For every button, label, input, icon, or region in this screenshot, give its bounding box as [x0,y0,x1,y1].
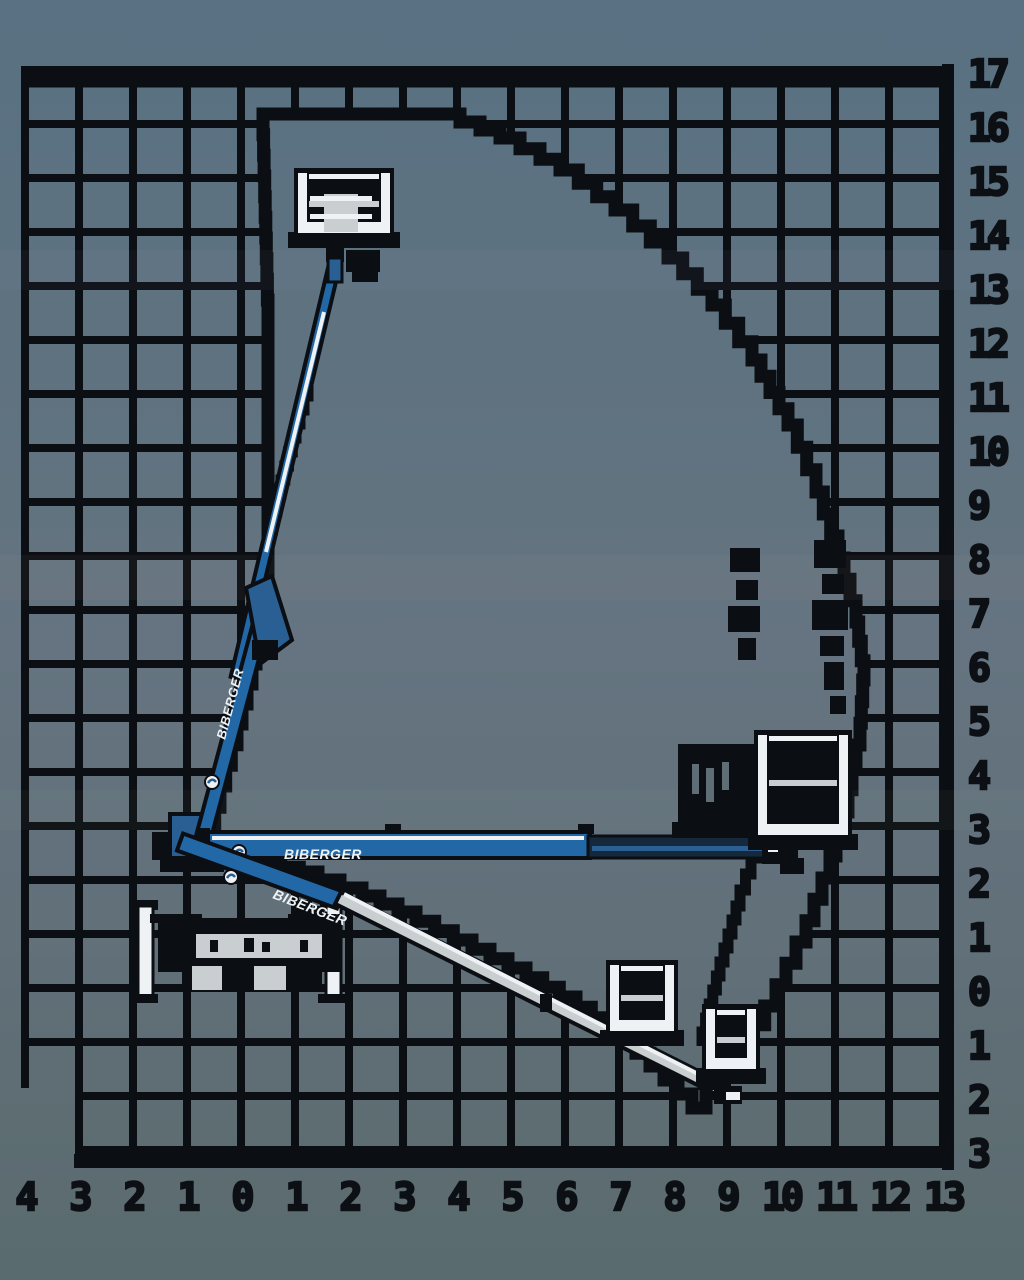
y-axis-label: 2 [968,865,987,903]
y-axis-label: 6 [968,649,987,687]
brand-logo-icon [224,870,238,884]
y-axis-label: 8 [968,541,987,579]
x-axis-label: 0 [232,1178,251,1216]
y-axis-label: 13 [968,271,1006,309]
x-axis-label: 13 [924,1178,962,1216]
x-axis-label: 2 [340,1178,359,1216]
reach-diagram: BIBERGERBIBERGERBIBERGER 432101234567891… [0,0,1024,1280]
basket-outreach-shadow [672,744,760,838]
x-axis-label: 10 [762,1178,800,1216]
x-axis-label: 12 [870,1178,908,1216]
y-axis-label: 3 [968,1135,987,1173]
basket-below-grade-tip [696,1004,766,1084]
y-axis-label: 7 [968,595,987,633]
x-axis-label: 4 [448,1178,467,1216]
y-axis-label: 0 [968,973,987,1011]
y-axis-label: 3 [968,811,987,849]
x-axis-label: 11 [816,1178,854,1216]
x-axis-label: 3 [394,1178,413,1216]
x-axis-label: 2 [124,1178,143,1216]
y-axis-label: 12 [968,325,1006,363]
y-axis-label: 10 [968,433,1006,471]
y-axis-label: 1 [968,919,987,957]
diagram-canvas: BIBERGERBIBERGERBIBERGER [0,0,1024,1280]
y-axis-label: 2 [968,1081,987,1119]
y-axis-label: 1 [968,1027,987,1065]
x-axis-label: 8 [664,1178,683,1216]
brand-logo-icon [205,775,219,789]
y-axis-label: 11 [968,379,1006,417]
x-axis-label: 1 [178,1178,197,1216]
y-axis-label: 4 [968,757,987,795]
y-axis-label: 17 [968,55,1006,93]
x-axis-label: 3 [70,1178,89,1216]
y-axis-label: 16 [968,109,1006,147]
basket-max-height [288,168,400,248]
y-axis-label: 14 [968,217,1006,255]
basket-max-outreach [748,730,858,850]
x-axis-label: 4 [16,1178,35,1216]
x-axis-label: 6 [556,1178,575,1216]
basket-below-grade-mid [600,960,684,1046]
y-axis-label: 15 [968,163,1006,201]
y-axis-label: 9 [968,487,987,525]
x-axis-label: 5 [502,1178,521,1216]
y-axis-label: 5 [968,703,987,741]
brand-label: BIBERGER [284,846,362,862]
x-axis-label: 7 [610,1178,629,1216]
x-axis-label: 1 [286,1178,305,1216]
x-axis-label: 9 [718,1178,737,1216]
